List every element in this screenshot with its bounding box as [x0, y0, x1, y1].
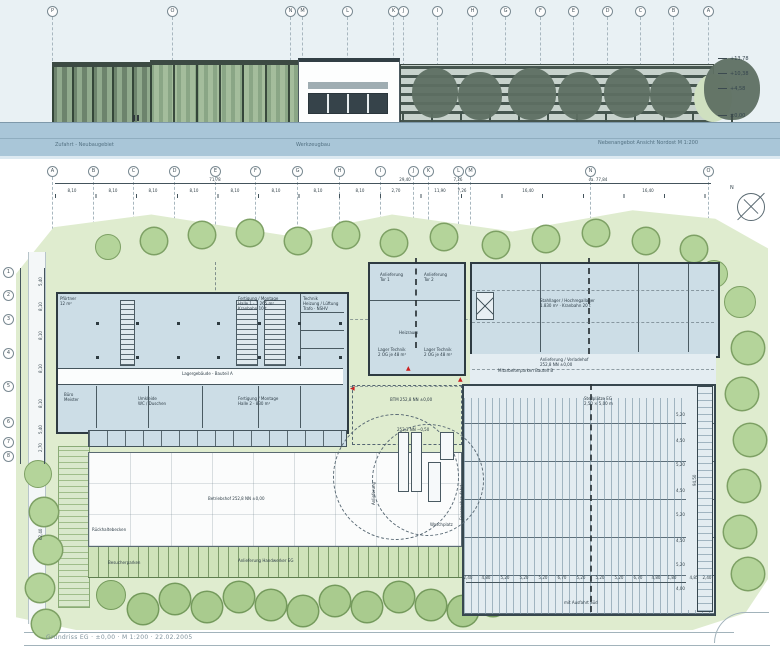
- grid-marker-label: 2: [7, 292, 10, 298]
- grid-marker: 7: [3, 437, 14, 448]
- hall-mullion: [347, 94, 349, 113]
- tree-row-north: [95, 234, 121, 260]
- grid-marker: 8: [3, 451, 14, 462]
- hall-mullion: [327, 94, 329, 113]
- partition: [301, 312, 344, 313]
- tree-icon: [412, 68, 458, 118]
- tree-icon: [650, 72, 692, 118]
- hall-mullion: [367, 94, 369, 113]
- dimension-value: 8,10: [149, 188, 158, 193]
- hall-band-gray: [308, 82, 388, 89]
- grid-marker: C: [128, 166, 139, 177]
- dimension-value: 16,40: [642, 188, 653, 193]
- dimension-value: 2,70: [392, 188, 401, 193]
- grid-marker-label: M: [468, 168, 472, 174]
- dimension-value: 8,10: [231, 188, 240, 193]
- grid-marker: 6: [3, 417, 14, 428]
- ground-line: [0, 138, 780, 139]
- dimension-value: 8,10: [68, 188, 77, 193]
- dimension-value: 8,10: [109, 188, 118, 193]
- column-row: [96, 322, 99, 325]
- dimension-line-ticks: [55, 194, 711, 198]
- dimension-value: 29,40: [399, 177, 410, 182]
- north-label: N: [730, 185, 734, 191]
- grid-marker-label: 8: [7, 453, 10, 459]
- grid-marker: 3: [3, 314, 14, 325]
- dimension-value: 8,10: [356, 188, 365, 193]
- dimension-value: 71,78: [209, 177, 220, 182]
- dimension-value: 8,10: [272, 188, 281, 193]
- grid-marker-label: 5: [7, 383, 10, 389]
- green-strip-west: [58, 446, 90, 608]
- grid-marker: 2: [3, 290, 14, 301]
- grid-marker-label: G: [296, 168, 300, 174]
- dimension-value: 8,10: [190, 188, 199, 193]
- grid-marker-label: L: [457, 168, 460, 174]
- grid-marker: E: [210, 166, 221, 177]
- elevation-title: Nebenangebot Ansicht Nordost M 1:200: [598, 140, 698, 146]
- stair-core: [120, 300, 135, 366]
- grid-marker: 5: [3, 381, 14, 392]
- parking-band-south: [88, 546, 470, 578]
- grid-marker: J: [408, 166, 419, 177]
- grid-marker: F: [250, 166, 261, 177]
- person-figure: [137, 115, 139, 121]
- grid-marker-label: I: [380, 168, 381, 174]
- parking-aisle: [464, 386, 710, 398]
- hedge-row-south: [96, 580, 126, 610]
- grid-marker-label: A: [51, 168, 54, 174]
- elevation-label-mid: Werkzeugbau: [296, 142, 330, 148]
- grid-marker: A: [47, 166, 58, 177]
- grid-marker-label: D: [173, 168, 177, 174]
- site-plan-drawing: P O N M L K J I: [0, 0, 780, 658]
- grid-marker-label: C: [132, 168, 136, 174]
- section-divider: [0, 156, 780, 159]
- dimension-line: [20, 268, 21, 464]
- grid-axis-bold: [590, 384, 592, 612]
- entrance-arrow-icon: ▲: [458, 377, 463, 383]
- building-center: [368, 262, 466, 376]
- partition: [638, 264, 639, 352]
- grid-marker-label: 4: [7, 350, 10, 356]
- partition: [96, 386, 97, 428]
- centerline: [472, 369, 714, 370]
- loading-dock: [428, 462, 441, 502]
- dimension-value: 7,26: [454, 177, 463, 182]
- grid-marker: K: [423, 166, 434, 177]
- dimension-line: [55, 183, 711, 184]
- dimension-value: 8,10: [314, 188, 323, 193]
- parking-strip-east: [697, 386, 713, 612]
- grid-marker: 4: [3, 348, 14, 359]
- dimension-line: [44, 268, 45, 464]
- crane-rail: [472, 290, 714, 291]
- grid-marker-label: 1: [7, 269, 10, 275]
- grid-marker: G: [292, 166, 303, 177]
- lift-shaft: [476, 292, 494, 320]
- partition: [300, 386, 301, 428]
- elevation-tree-screen: [150, 60, 298, 129]
- entrance-arrow-icon: ▲: [406, 366, 411, 372]
- grid-marker-label: H: [338, 168, 342, 174]
- grid-marker: D: [169, 166, 180, 177]
- tree-row-east: [724, 286, 756, 318]
- column-row: [96, 356, 99, 359]
- partition: [301, 348, 344, 349]
- grid-marker: I: [375, 166, 386, 177]
- tree-icon: [558, 72, 602, 120]
- grid-marker-label: K: [427, 168, 430, 174]
- north-arrow-icon: N: [737, 193, 765, 221]
- grid-marker-label: 3: [7, 316, 10, 322]
- dimension-total: 94,50: [692, 475, 697, 486]
- partition: [540, 264, 541, 352]
- technic-rooms: [300, 294, 344, 366]
- dimension-value: ca. 77,84: [589, 177, 608, 182]
- grid-marker: 1: [3, 267, 14, 278]
- tree-icon: [704, 58, 760, 120]
- grid-marker-label: N: [589, 168, 593, 174]
- tree-icon: [508, 68, 556, 120]
- grid-marker: L: [453, 166, 464, 177]
- grid-marker-label: 6: [7, 419, 10, 425]
- elevation-label-left: Zufahrt - Neubaugebiet: [55, 142, 114, 148]
- road-south: [24, 645, 770, 646]
- grid-marker: M: [465, 166, 476, 177]
- grid-marker-label: O: [707, 168, 711, 174]
- drawing-title: Grundriss EG · ±0,00 · M 1:200 · 22.02.2…: [46, 634, 192, 641]
- tree-icon: [458, 72, 502, 120]
- dimension-line: [466, 582, 686, 583]
- dimension-value: 16,40: [522, 188, 533, 193]
- building-a-corridor: [58, 368, 343, 385]
- grid-marker-label: B: [92, 168, 95, 174]
- partition: [148, 386, 149, 428]
- stair-core: [236, 300, 258, 366]
- building-hall-east: [470, 262, 720, 358]
- loading-dock: [398, 432, 409, 492]
- grid-marker-label: 7: [7, 439, 10, 445]
- partition: [301, 330, 344, 331]
- road-south: [24, 632, 734, 633]
- stair-core: [264, 300, 286, 366]
- grid-axis-bold: [588, 258, 590, 354]
- grid-marker-label: J: [413, 168, 414, 174]
- grid-marker: B: [88, 166, 99, 177]
- partition: [202, 386, 203, 428]
- loading-dock: [411, 432, 422, 492]
- partition: [258, 386, 259, 428]
- grid-axis-bold: [415, 258, 417, 348]
- dimension-value: 11,90: [434, 188, 445, 193]
- parking-gap: [686, 386, 697, 610]
- grid-marker-label: E: [214, 168, 217, 174]
- loading-dock: [440, 432, 454, 460]
- partition: [688, 264, 689, 352]
- dimension-value: 7,26: [458, 188, 467, 193]
- grid-marker: N: [585, 166, 596, 177]
- grid-marker-label: F: [254, 168, 257, 174]
- storage-cells-row: [88, 430, 347, 447]
- tree-row-west: [24, 460, 52, 488]
- crane-rail: [472, 322, 714, 323]
- grid-marker: O: [703, 166, 714, 177]
- tree-icon: [604, 68, 650, 118]
- person-figure: [133, 115, 135, 121]
- grid-marker: H: [334, 166, 345, 177]
